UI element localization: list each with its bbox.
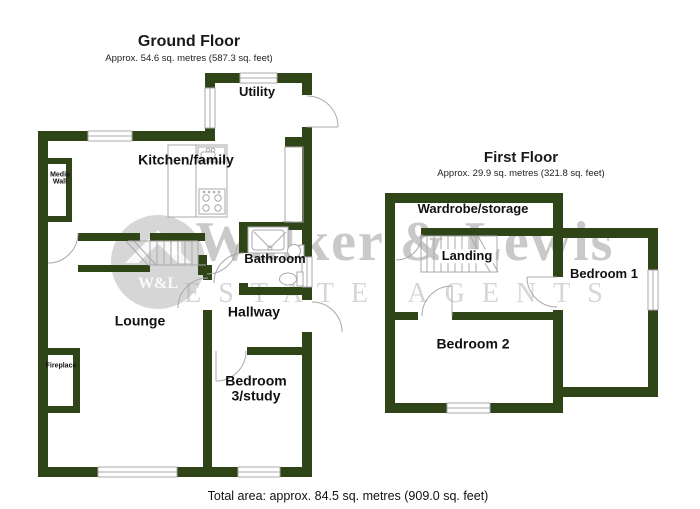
label-media-wall: Media Wall — [50, 172, 70, 187]
kitchen-hob — [199, 189, 225, 214]
door-arc — [307, 96, 338, 127]
door-arc — [396, 234, 422, 260]
first-floor-walls — [385, 193, 658, 413]
bedroom3-line1: Bedroom — [225, 373, 286, 388]
room-label-lounge: Lounge — [115, 314, 166, 329]
ground-floor-title: Ground Floor — [105, 33, 272, 51]
room-label-wardrobe-storage: Wardrobe/storage — [418, 202, 529, 216]
bedroom3-line2: 3/study — [225, 388, 286, 403]
shower — [248, 227, 288, 253]
label-fireplace: Fireplace — [46, 362, 77, 369]
ground-floor-area: Approx. 54.6 sq. metres (587.3 sq. feet) — [105, 53, 272, 64]
room-label-bathroom: Bathroom — [244, 252, 305, 266]
media-line1: Media — [50, 172, 70, 179]
door-arc — [214, 253, 244, 283]
door-arc — [312, 302, 342, 332]
floorplan-page: Walker & Lewis ESTATE AGENTS W&L — [0, 0, 700, 509]
ground-floor-walls — [38, 73, 312, 477]
ground-floor-title-block: Ground Floor Approx. 54.6 sq. metres (58… — [105, 33, 272, 64]
room-label-hallway: Hallway — [228, 305, 280, 320]
media-wall-feature — [48, 158, 72, 222]
room-label-bedroom1: Bedroom 1 — [570, 267, 638, 281]
ground-stairs — [126, 241, 206, 265]
door-arc — [527, 277, 557, 307]
first-floor-area: Approx. 29.9 sq. metres (321.8 sq. feet) — [437, 168, 604, 179]
window — [240, 73, 277, 83]
window — [88, 131, 132, 141]
window — [447, 403, 490, 413]
window — [238, 467, 280, 477]
door-arc — [178, 278, 208, 308]
kitchen-tall-unit — [285, 147, 303, 222]
room-label-utility: Utility — [239, 85, 275, 99]
room-label-landing: Landing — [439, 249, 496, 263]
first-floor-title-block: First Floor Approx. 29.9 sq. metres (321… — [437, 149, 604, 179]
total-area-text: Total area: approx. 84.5 sq. metres (909… — [208, 489, 489, 503]
first-floor-title: First Floor — [437, 149, 604, 166]
media-line2: Wall — [50, 179, 70, 186]
toilet — [280, 272, 304, 286]
room-label-kitchen-family: Kitchen/family — [138, 153, 234, 168]
room-label-bedroom3-study: Bedroom 3/study — [225, 373, 286, 402]
plan-linework — [0, 0, 700, 509]
window — [648, 270, 658, 310]
window — [205, 88, 215, 128]
room-label-bedroom2: Bedroom 2 — [436, 337, 509, 352]
door-arc — [48, 233, 78, 263]
door-arc — [422, 286, 452, 316]
fireplace-feature — [43, 348, 80, 413]
window — [98, 467, 177, 477]
